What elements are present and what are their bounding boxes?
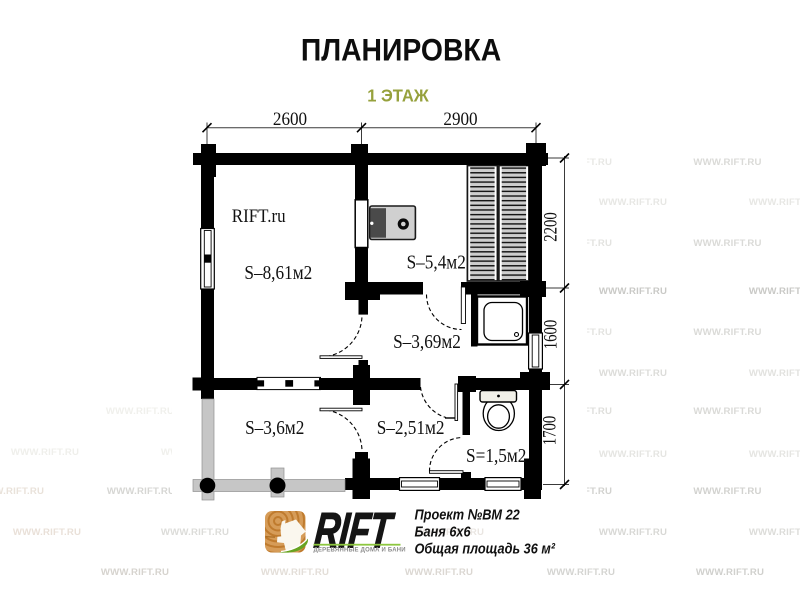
svg-text:WWW.RIFT.RU: WWW.RIFT.RU (693, 406, 761, 417)
svg-text:S=1,5м2: S=1,5м2 (466, 445, 526, 468)
svg-text:WWW.RIFT.RU: WWW.RIFT.RU (749, 368, 800, 379)
svg-text:1 ЭТАЖ: 1 ЭТАЖ (367, 85, 429, 106)
svg-text:WWW.RIFT.RU: WWW.RIFT.RU (107, 486, 175, 497)
svg-text:WWW.RIFT.RU: WWW.RIFT.RU (693, 238, 761, 249)
svg-text:WWW.RIFT.RU: WWW.RIFT.RU (693, 327, 761, 338)
svg-text:ДЕРЕВЯННЫЕ ДОМА И БАНИ: ДЕРЕВЯННЫЕ ДОМА И БАНИ (314, 546, 407, 553)
svg-text:2600: 2600 (273, 108, 307, 129)
svg-text:WWW.RIFT.RU: WWW.RIFT.RU (599, 449, 667, 460)
svg-text:1700: 1700 (539, 416, 560, 446)
svg-text:Общая площадь 36 м²: Общая площадь 36 м² (415, 539, 556, 556)
svg-text:WWW.RIFT.RU: WWW.RIFT.RU (599, 527, 667, 538)
svg-text:WWW.RIFT.RU: WWW.RIFT.RU (13, 527, 81, 538)
svg-text:WWW.RIFT.RU: WWW.RIFT.RU (161, 527, 229, 538)
svg-text:WWW.RIFT.RU: WWW.RIFT.RU (749, 527, 800, 538)
svg-text:2200: 2200 (540, 212, 561, 242)
svg-text:S–3,6м2: S–3,6м2 (245, 417, 304, 440)
svg-text:WWW.RIFT.RU: WWW.RIFT.RU (696, 567, 764, 578)
svg-text:S–3,69м2: S–3,69м2 (393, 331, 461, 354)
svg-text:WWW.RIFT.RU: WWW.RIFT.RU (11, 447, 79, 458)
svg-text:WWW.RIFT.RU: WWW.RIFT.RU (405, 567, 473, 578)
svg-text:S–5,4м2: S–5,4м2 (407, 251, 466, 274)
svg-text:WWW.RIFT.RU: WWW.RIFT.RU (749, 197, 800, 208)
svg-text:S–8,61м2: S–8,61м2 (244, 262, 312, 285)
svg-text:WWW.RIFT.RU: WWW.RIFT.RU (749, 286, 800, 297)
svg-text:WWW.RIFT.RU: WWW.RIFT.RU (547, 567, 615, 578)
svg-text:ПЛАНИРОВКА: ПЛАНИРОВКА (301, 33, 501, 68)
svg-text:WWW.RIFT.RU: WWW.RIFT.RU (599, 286, 667, 297)
svg-text:WWW.RIFT.RU: WWW.RIFT.RU (749, 449, 800, 460)
svg-text:RIFT.ru: RIFT.ru (232, 205, 286, 226)
svg-text:WWW.RIFT.RU: WWW.RIFT.RU (693, 486, 761, 497)
svg-text:Баня 6х6: Баня 6х6 (415, 522, 471, 539)
svg-text:WWW.RIFT.RU: WWW.RIFT.RU (106, 406, 174, 417)
svg-text:WWW.RIFT.RU: WWW.RIFT.RU (101, 567, 169, 578)
svg-text:S–2,51м2: S–2,51м2 (377, 417, 445, 440)
svg-text:WWW.RIFT.RU: WWW.RIFT.RU (693, 157, 761, 168)
svg-text:WWW.RIFT.RU: WWW.RIFT.RU (261, 567, 329, 578)
svg-text:WWW.RIFT.RU: WWW.RIFT.RU (599, 368, 667, 379)
svg-text:WWW.RIFT.RU: WWW.RIFT.RU (0, 486, 44, 497)
svg-text:Проект №ВМ 22: Проект №ВМ 22 (415, 505, 520, 522)
svg-text:1600: 1600 (540, 320, 561, 350)
svg-text:2900: 2900 (443, 108, 477, 129)
svg-text:WWW.RIFT.RU: WWW.RIFT.RU (599, 197, 667, 208)
